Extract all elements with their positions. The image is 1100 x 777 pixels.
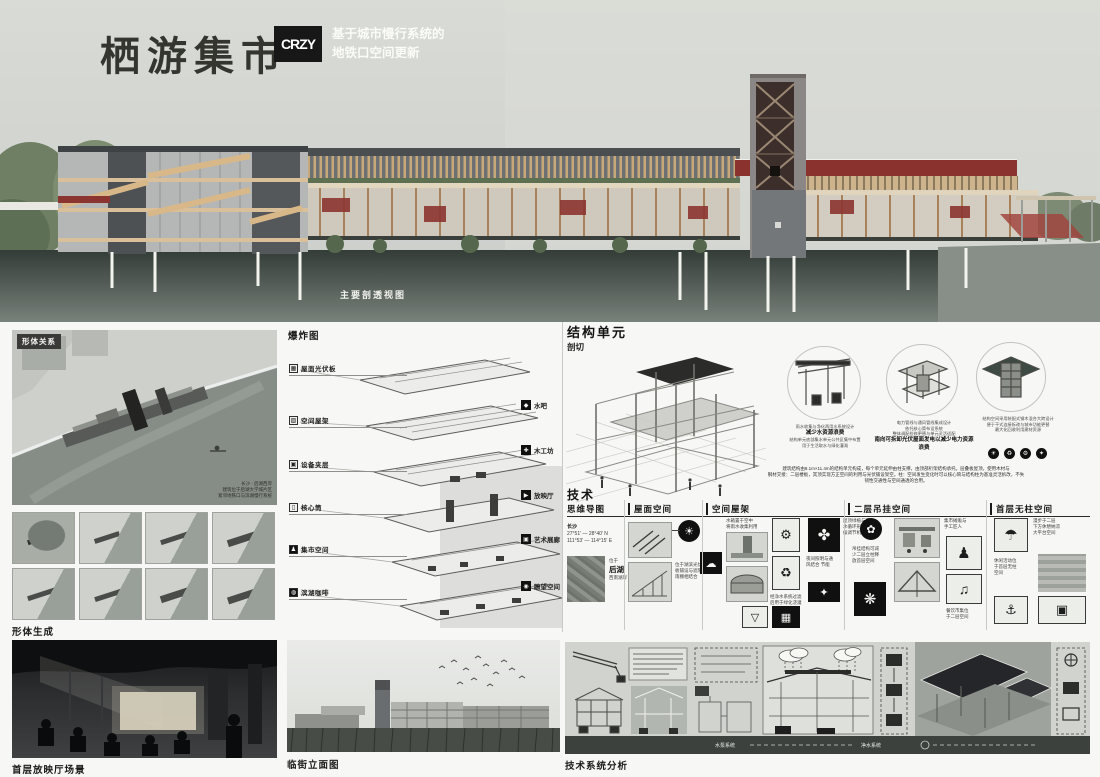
flow-diagram-box <box>695 648 757 732</box>
detail-circle-water <box>787 346 861 420</box>
birds <box>439 656 525 686</box>
tech-col-header-truss: 空间屋架 <box>706 503 750 515</box>
exploded-label-water-bar: ◆ 水吧 <box>521 400 547 410</box>
truss-icon: ▨ <box>289 416 298 425</box>
form-step-tile <box>12 568 75 620</box>
form-step-tile <box>212 568 275 620</box>
recycle-icon: ♻ <box>772 556 800 590</box>
exploded-label-wood-shop: ✚ 木工坊 <box>521 445 554 455</box>
market-scene-tile <box>894 518 940 558</box>
equipment-icon: ▣ <box>289 460 298 469</box>
building-mid-band <box>308 148 740 253</box>
technical-systems-caption: 技术系统分析 <box>565 758 628 772</box>
tech-col-header-roof: 屋面空间 <box>628 503 672 515</box>
detail-circle-power <box>886 344 958 416</box>
form-relation-note: 长沙 · 后湖西岸 建筑位于后湖大学城片区 紧邻地铁口与滨湖慢行系统 <box>218 481 272 499</box>
core-icon: ▯ <box>289 503 298 512</box>
water-bar-icon: ◆ <box>521 400 531 410</box>
lookout-icon: ◉ <box>521 581 531 591</box>
tech-col-header-hanging: 二层吊挂空间 <box>848 503 911 515</box>
pump-icon: ⚙ <box>772 518 800 552</box>
free-caption-1: 漫步于二层 下方休憩纳凉 大平台空间 <box>1033 518 1085 536</box>
technical-systems-panel: 水泵系统 净水系统 <box>565 642 1090 754</box>
solar-panel-icon: ▦ <box>772 606 800 628</box>
form-generation-label: 形体生成 <box>12 624 54 638</box>
form-relation-panel: 形体关系 长沙 · 后湖西岸 建筑位于后湖大学城片区 紧邻地铁口与滨湖慢行系统 <box>12 330 277 505</box>
form-step-tile <box>79 568 142 620</box>
main-render-caption: 主要剖透视图 <box>340 288 406 301</box>
recycle-badge-icon: ♻ <box>1004 448 1015 459</box>
circle1-caption: 雨水收集与净化两用水系统设计 减少水资源浪费 结构单元底部集水单元公共区集中布置… <box>770 424 880 449</box>
board-title: 栖游集市 <box>100 24 288 82</box>
exploded-title: 爆炸图 <box>288 328 320 342</box>
roof-detail-sketch <box>573 652 625 682</box>
wood-shop-icon: ✚ <box>521 445 531 455</box>
form-generation-grid <box>12 512 277 620</box>
tower <box>750 74 806 258</box>
drummer-icon: ♫ <box>946 574 982 604</box>
street-view-tile <box>1038 554 1086 592</box>
stage-icon: ▣ <box>1038 596 1086 624</box>
boat-icon: ⚓ <box>994 596 1028 624</box>
form-step-tile <box>145 512 208 564</box>
tech-divider <box>702 500 703 630</box>
presentation-board: 栖游集市 CRZY 基于城市慢行系统的 地铁口空间更新 主要剖透视图 <box>0 0 1100 777</box>
band-label-filter: 净水系统 <box>861 742 881 749</box>
exploded-label-equipment: ▣ 设备夹层 <box>289 459 407 472</box>
umbrella-icon: ☂ <box>994 518 1028 552</box>
truss-caption-1: 水箱置于空中 将雨水收集利用 <box>726 518 760 530</box>
gear-badge-icon: ⚙ <box>1020 448 1031 459</box>
site-plan-axon <box>12 330 277 505</box>
subtitle-line2: 地铁口空间更新 <box>332 44 445 63</box>
column-divider <box>562 322 563 632</box>
tech-divider <box>986 500 987 630</box>
circle2-caption: 电力管线与通风管线集成设计 依托核心筒布设系统 整体调配检修更替与单元灵活适配 … <box>872 420 976 452</box>
exploded-label-roof-pv: ▦ 屋面光伏板 <box>289 363 407 376</box>
form-step-tile <box>12 512 75 564</box>
site-satellite-map <box>567 556 605 602</box>
systems-icon-column <box>1057 648 1085 734</box>
hang-caption-1: 吊挂结构可减 少二层立柱释 放首层空间 <box>852 546 888 564</box>
rain-section-diagram <box>763 646 873 734</box>
tech-header-rule <box>567 516 1090 517</box>
exploded-label-cafe: ◍ 滨湖咖啡 <box>289 587 407 600</box>
corn-icon: ✿ <box>860 518 882 540</box>
tent-scene-tile <box>894 562 940 602</box>
water-tank-tile <box>726 566 768 602</box>
water-tower-tile <box>726 532 768 562</box>
market-icon: ♟ <box>289 545 298 554</box>
tech-divider <box>844 500 845 630</box>
exploded-label-market: ♟ 集市空间 <box>289 544 407 557</box>
cinema-scene-caption: 首层放映厅场景 <box>12 762 86 776</box>
tech-col-header-mindmap: 思维导图 <box>567 503 605 515</box>
truss-caption-2: 经净水系统过滤 后用于绿化浇灌 <box>770 594 804 606</box>
street-elevation-caption: 临街立面图 <box>287 757 340 771</box>
building-left-block <box>58 146 308 254</box>
market-people-icon: ♟ <box>946 536 982 570</box>
circle3-caption: 结构空间采用装配式钢木混合大跨设计 便于干式连接拆改与城市功能更替 最大化回收利… <box>966 416 1070 433</box>
tech-divider <box>624 500 625 630</box>
cinema-icon: ▶ <box>521 490 531 500</box>
hang-caption-3: 餐饮市集位 于二层空间 <box>946 608 986 620</box>
structure-title: 结构单元 <box>567 322 627 341</box>
cafe-icon: ◍ <box>289 588 298 597</box>
street-elevation-render <box>287 640 560 752</box>
exploded-label-lookout: ◉ 瞭望空间 <box>521 581 560 591</box>
sun-badge-icon: ☀ <box>988 448 999 459</box>
exploded-label-gallery: ▣ 艺术展廊 <box>521 534 560 544</box>
connector <box>672 530 680 531</box>
battery-flow-column <box>881 648 907 734</box>
cinema-scene-render <box>12 640 277 758</box>
plants-icon: ✤ <box>808 518 840 552</box>
exploded-label-cinema: ▶ 放映厅 <box>521 490 554 500</box>
roof-truss-tile <box>628 562 672 602</box>
gallery-icon: ▣ <box>521 534 531 544</box>
band-label-pump: 水泵系统 <box>715 742 735 749</box>
mindmap-city: 长沙 27°51′ — 28°40′ N 111°53′ — 114°15′ E <box>567 524 625 544</box>
structure-description: 建筑结构由8.1m×11.4m的结构单元构成，每个单元延伸由柱支撑，由顶部桁架结… <box>700 466 1092 484</box>
technology-title: 技术 <box>567 486 595 503</box>
roof-pv-tile <box>628 522 672 558</box>
funnel-icon: ▽ <box>742 606 768 628</box>
sun-icon: ☀ <box>678 520 700 542</box>
studio-logo: CRZY <box>274 26 322 62</box>
tech-col-header-columnfree: 首层无柱空间 <box>990 503 1053 515</box>
mindmap-location: 位于 后湖 西南湖岸 <box>609 558 629 581</box>
rain-cloud-icon: ☁ <box>700 552 722 574</box>
exploded-label-core: ▯ 核心筒 <box>289 502 407 515</box>
form-step-tile <box>145 568 208 620</box>
section-sketch-1 <box>575 688 623 733</box>
hang-caption-2: 集市摊贩与 手工匠人 <box>944 518 984 530</box>
pv-panel-icon: ▦ <box>289 364 298 373</box>
form-step-tile <box>79 512 142 564</box>
structure-badges: ☀ ♻ ⚙ ✦ <box>988 448 1047 459</box>
form-relation-label: 形体关系 <box>17 334 61 349</box>
subtitle-line1: 基于城市慢行系统的 <box>332 25 445 44</box>
free-caption-2: 休闲活动位 于首层无柱 空间 <box>994 558 1034 576</box>
lamp-icon: ✦ <box>808 582 840 602</box>
exploded-label-space-truss: ▨ 空间屋架 <box>289 415 407 428</box>
pv-axon-diagram <box>915 642 1051 738</box>
truss-caption-4: 夜间照明与通 风结合 节能 <box>806 556 840 568</box>
spark-badge-icon: ✦ <box>1036 448 1047 459</box>
grapes-icon: ❋ <box>854 582 886 616</box>
form-step-tile <box>212 512 275 564</box>
note-text-block <box>629 648 687 680</box>
detail-circle-assembly <box>976 342 1046 412</box>
section-sketch-2 <box>631 686 687 734</box>
